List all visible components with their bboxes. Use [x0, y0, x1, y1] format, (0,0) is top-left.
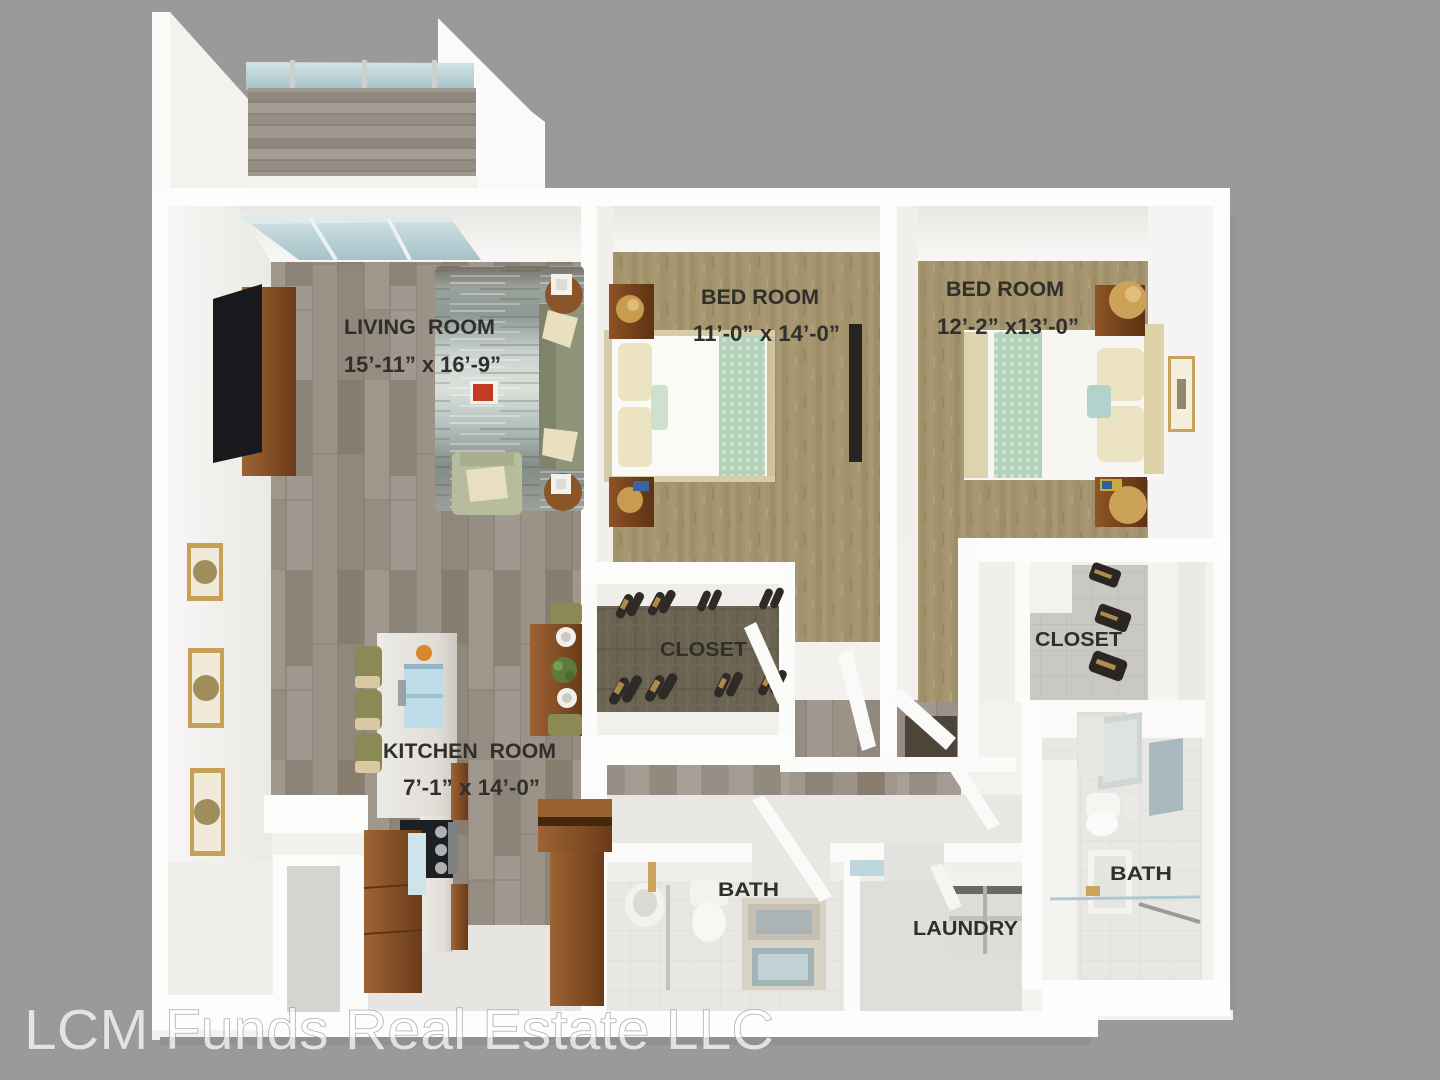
svg-text:CLOSET: CLOSET	[660, 639, 747, 661]
svg-text:BATH: BATH	[718, 880, 779, 901]
svg-text:BED ROOM: BED ROOM	[701, 286, 819, 309]
svg-text:12’-2” x13’-0”: 12’-2” x13’-0”	[937, 314, 1079, 339]
svg-text:BED ROOM: BED ROOM	[946, 278, 1064, 301]
svg-text:15’-11” x 16’-9”: 15’-11” x 16’-9”	[344, 352, 501, 377]
svg-text:LAUNDRY: LAUNDRY	[913, 918, 1019, 940]
svg-text:CLOSET: CLOSET	[1035, 629, 1122, 651]
svg-text:11’-0” x 14’-0”: 11’-0” x 14’-0”	[693, 321, 840, 346]
svg-text:LCM Funds Real Estate LLC: LCM Funds Real Estate LLC	[24, 998, 774, 1062]
svg-text:BATH: BATH	[1110, 864, 1172, 885]
svg-text:7’-1” x 14’-0”: 7’-1” x 14’-0”	[403, 775, 540, 800]
svg-text:KITCHEN ROOM: KITCHEN ROOM	[383, 740, 556, 763]
svg-text:LIVING ROOM: LIVING ROOM	[344, 316, 495, 339]
